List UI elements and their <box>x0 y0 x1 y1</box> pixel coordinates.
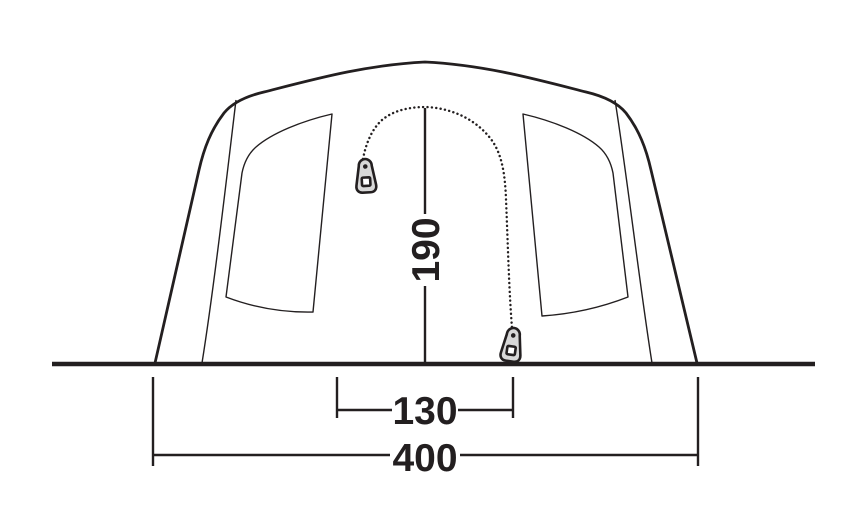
tent-front-elevation-svg: 190 130 400 <box>0 0 860 505</box>
tent-seam-left <box>202 100 236 363</box>
door-width-dimension-label: 130 <box>392 390 457 433</box>
zipper-pull-hole <box>362 177 371 186</box>
zipper-pull-bottom-icon <box>500 327 524 363</box>
zipper-pull-top-icon <box>355 158 377 192</box>
zipper-pull-body <box>355 158 377 192</box>
tent-dimension-diagram: 190 130 400 <box>0 0 860 505</box>
total-width-dimension-label: 400 <box>392 437 457 480</box>
zipper-pull-body <box>500 327 524 363</box>
tent-window-right <box>523 114 628 316</box>
tent-window-left <box>226 114 332 312</box>
zipper-pull-hole <box>506 346 515 355</box>
height-dimension-label: 190 <box>405 217 448 282</box>
